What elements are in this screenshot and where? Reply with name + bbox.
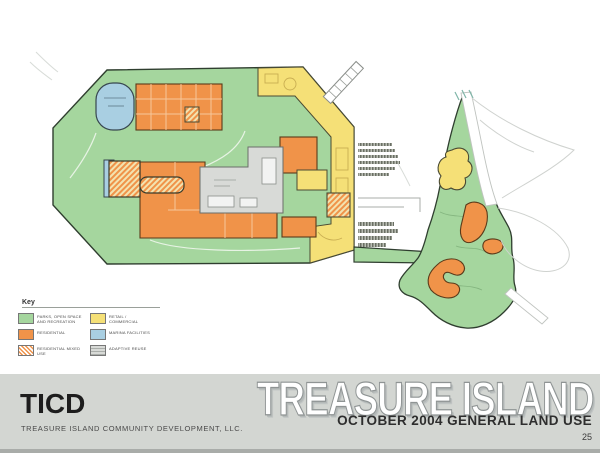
legend-label: RESIDENTIAL MIXED USE	[37, 345, 84, 356]
legend-item: RESIDENTIAL MIXED USE	[18, 345, 84, 356]
sw-orange-swatch	[18, 329, 34, 340]
residential-block-east	[280, 137, 317, 173]
legend-title: Key	[22, 299, 168, 306]
mixed-use-parcel-east	[327, 193, 350, 217]
pier-group-north	[358, 143, 400, 176]
map-legend: Key PARKS, OPEN SPACE AND RECREATIONRESI…	[18, 299, 168, 356]
sw-yellow-swatch	[90, 313, 106, 324]
residential-block-north	[136, 84, 222, 130]
legend-items: PARKS, OPEN SPACE AND RECREATIONRESIDENT…	[18, 313, 168, 356]
page-number: 25	[582, 432, 592, 442]
treasure-island	[53, 67, 354, 264]
sw-green-swatch	[18, 313, 34, 324]
sw-dash-swatch	[90, 345, 106, 356]
legend-divider	[22, 307, 160, 308]
legend-label: MARINA FACILITIES	[109, 329, 150, 335]
legend-label: PARKS, OPEN SPACE AND RECREATION	[37, 313, 84, 324]
legend-label: RESIDENTIAL	[37, 329, 65, 335]
sw-hatch-swatch	[18, 345, 34, 356]
legend-label: RETAIL / COMMERCIAL	[109, 313, 156, 324]
sw-blue-swatch	[90, 329, 106, 340]
footer-edge	[0, 449, 600, 453]
ticd-logo: TICD	[20, 388, 85, 420]
east-bridge-span	[505, 288, 548, 324]
company-name: TREASURE ISLAND COMMUNITY DEVELOPMENT, L…	[21, 424, 243, 433]
legend-item: RESIDENTIAL	[18, 329, 84, 340]
legend-item: RETAIL / COMMERCIAL	[90, 313, 156, 324]
marina-lagoon	[96, 83, 134, 130]
pier-diagonal	[323, 61, 363, 103]
legend-item: PARKS, OPEN SPACE AND RECREATION	[18, 313, 84, 324]
yerba-buena-island	[399, 90, 574, 328]
residential-block-southeast	[282, 217, 316, 237]
pier-lines-mid	[358, 198, 420, 212]
legend-item: MARINA FACILITIES	[90, 329, 156, 340]
retail-parcel	[297, 170, 327, 190]
pier-group-south	[358, 222, 398, 247]
legend-item: ADAPTIVE REUSE	[90, 345, 156, 356]
slide-subtitle: OCTOBER 2004 GENERAL LAND USE	[337, 413, 592, 428]
legend-label: ADAPTIVE REUSE	[109, 345, 146, 351]
